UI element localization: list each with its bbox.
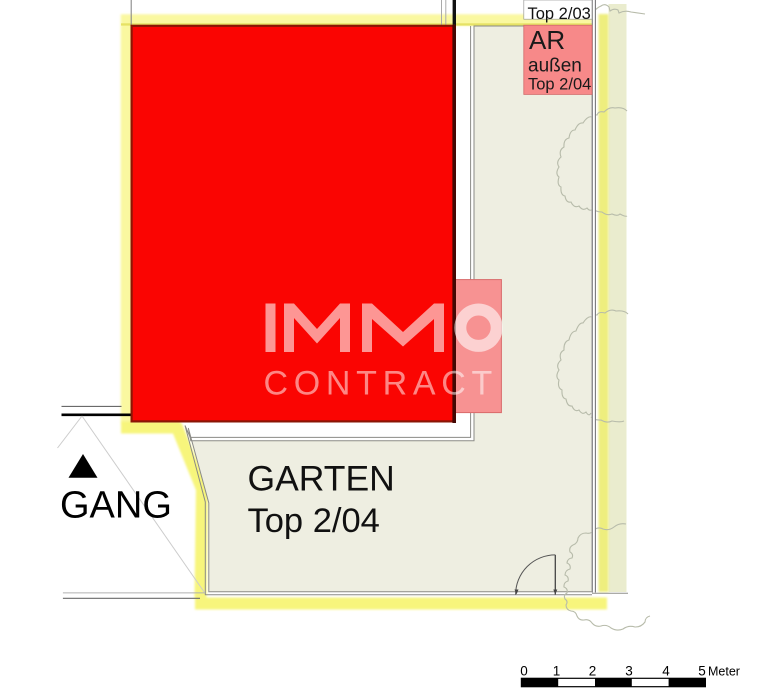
svg-text:1: 1: [553, 664, 561, 679]
svg-text:3: 3: [625, 664, 633, 679]
svg-text:CONTRACT: CONTRACT: [264, 365, 498, 403]
svg-text:GARTEN: GARTEN: [248, 459, 395, 499]
svg-text:2: 2: [589, 664, 597, 679]
svg-text:AR: AR: [529, 25, 565, 55]
svg-text:0: 0: [520, 664, 528, 679]
svg-text:Top 2/04: Top 2/04: [248, 502, 380, 540]
svg-text:außen: außen: [528, 56, 582, 77]
svg-text:GANG: GANG: [60, 485, 172, 527]
svg-text:Top 2/04: Top 2/04: [528, 76, 591, 94]
svg-text:Meter: Meter: [708, 665, 740, 679]
svg-text:5: 5: [698, 664, 706, 679]
svg-text:4: 4: [662, 664, 670, 679]
svg-text:Top 2/03: Top 2/03: [528, 5, 591, 23]
